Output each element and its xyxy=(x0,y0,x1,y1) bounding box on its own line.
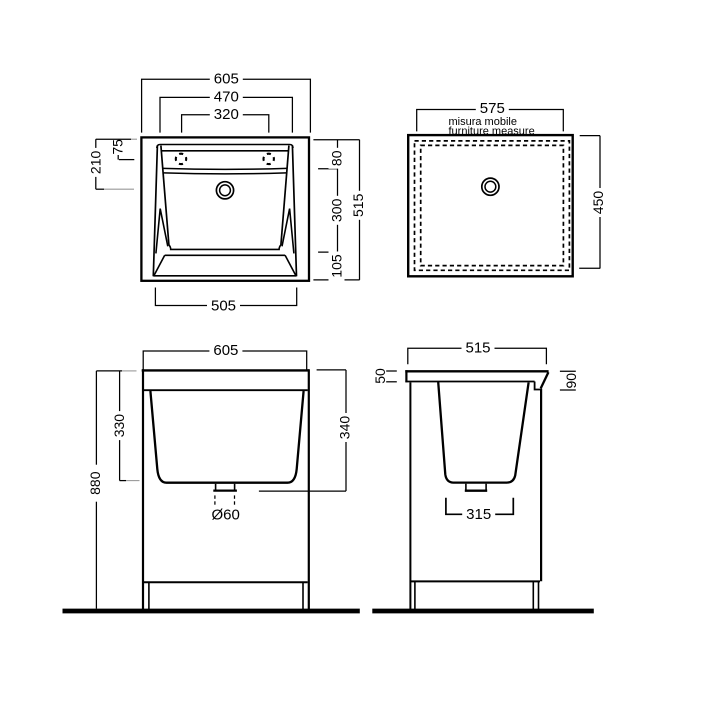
svg-text:340: 340 xyxy=(337,416,353,440)
svg-text:320: 320 xyxy=(214,106,239,123)
svg-text:80: 80 xyxy=(329,150,345,166)
svg-text:105: 105 xyxy=(329,254,345,278)
svg-text:50: 50 xyxy=(372,368,388,384)
svg-text:75: 75 xyxy=(110,139,126,155)
svg-text:575: 575 xyxy=(480,100,505,117)
svg-text:505: 505 xyxy=(211,298,236,315)
svg-text:Ø60: Ø60 xyxy=(212,506,240,523)
svg-text:315: 315 xyxy=(466,506,491,523)
svg-text:330: 330 xyxy=(111,414,127,438)
svg-text:515: 515 xyxy=(350,193,366,217)
svg-text:880: 880 xyxy=(87,471,103,495)
svg-text:450: 450 xyxy=(590,191,606,215)
svg-text:210: 210 xyxy=(87,151,103,175)
svg-text:470: 470 xyxy=(214,89,239,106)
svg-text:furniture measure: furniture measure xyxy=(449,126,535,138)
svg-text:605: 605 xyxy=(214,70,239,87)
svg-text:515: 515 xyxy=(465,339,490,356)
svg-text:90: 90 xyxy=(563,373,579,389)
svg-text:605: 605 xyxy=(213,342,238,359)
svg-text:300: 300 xyxy=(329,198,345,222)
